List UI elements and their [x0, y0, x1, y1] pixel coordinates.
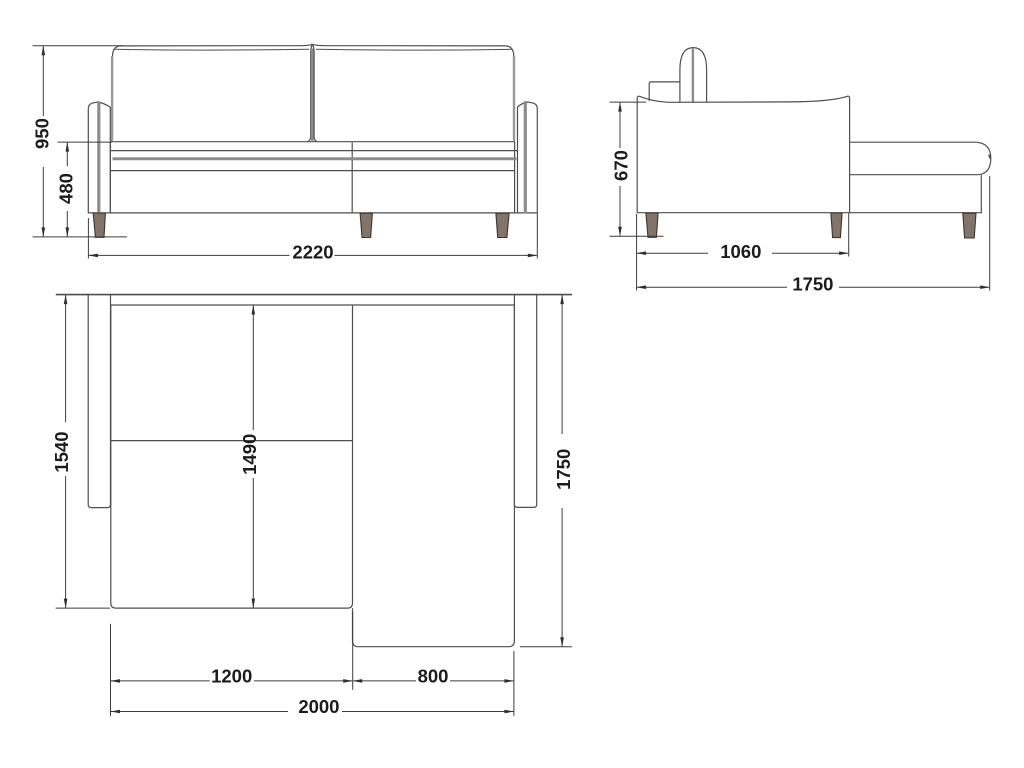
svg-text:1750: 1750 — [792, 274, 833, 295]
svg-text:2000: 2000 — [298, 696, 339, 717]
svg-text:2220: 2220 — [292, 241, 333, 262]
svg-text:1490: 1490 — [239, 434, 260, 475]
svg-text:1750: 1750 — [553, 449, 574, 490]
svg-text:1540: 1540 — [51, 431, 72, 472]
svg-text:670: 670 — [611, 150, 632, 181]
svg-text:1060: 1060 — [720, 241, 761, 262]
svg-text:1200: 1200 — [211, 666, 252, 687]
svg-text:950: 950 — [31, 118, 52, 149]
svg-text:800: 800 — [418, 666, 449, 687]
svg-text:480: 480 — [55, 173, 76, 204]
